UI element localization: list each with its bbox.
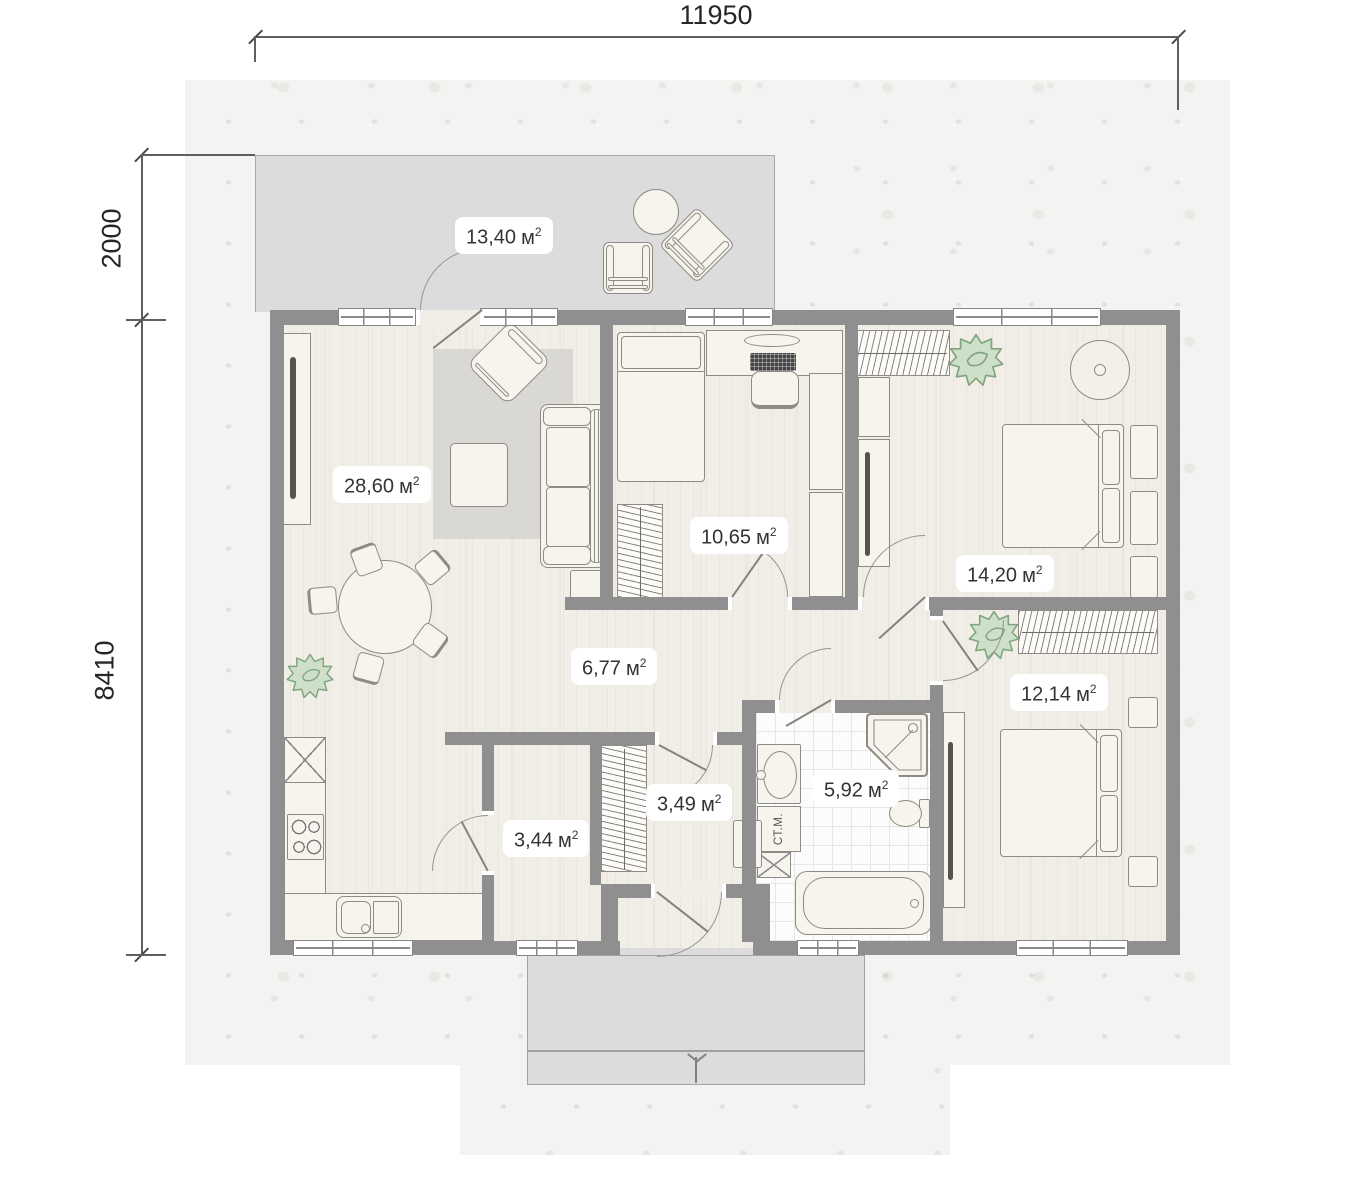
door-jamb <box>713 732 717 745</box>
wall <box>925 597 1167 610</box>
wall <box>831 700 930 713</box>
wall <box>445 732 659 745</box>
bed-pillow <box>1102 430 1120 485</box>
dresser <box>858 377 890 437</box>
door-jamb <box>651 884 655 898</box>
sofa-cushion <box>546 427 590 487</box>
chair-back <box>608 285 648 289</box>
wall <box>930 681 943 942</box>
terrace-armchair <box>603 242 653 294</box>
faucet-icon <box>910 899 919 908</box>
wall <box>601 884 618 955</box>
wardrobe-upper <box>809 373 843 490</box>
room-label-bathroom: 5,92м2 <box>813 770 899 807</box>
wardrobe-lower <box>809 492 843 597</box>
door-jamb <box>416 310 420 325</box>
wall <box>600 325 613 597</box>
dimension-extension <box>254 36 256 62</box>
washing-machine: СТ.М. <box>757 806 801 852</box>
wall <box>845 325 858 597</box>
faucet-icon <box>756 770 766 780</box>
dimension-line-top <box>255 36 1178 38</box>
dining-chair <box>307 586 338 615</box>
bathtub-inner <box>803 877 924 929</box>
window <box>293 940 413 956</box>
wall <box>1166 310 1180 955</box>
plant-icon <box>948 331 1004 389</box>
washing-machine-label: СТ.М. <box>773 813 785 845</box>
room-label-storage: 3,44м2 <box>503 820 589 857</box>
dimension-extension <box>141 154 255 156</box>
door-jamb <box>930 616 943 620</box>
dimension-value-left-upper: 2000 <box>97 179 128 299</box>
chair-back <box>608 277 648 281</box>
door-jamb <box>480 310 484 325</box>
window <box>516 940 578 956</box>
window <box>1016 940 1128 956</box>
nightstand <box>1130 491 1158 545</box>
wall <box>482 745 494 815</box>
room-label-bedroom-1: 14,20м2 <box>956 555 1054 592</box>
drying-rack <box>617 504 663 604</box>
dimension-extension <box>126 319 166 321</box>
bathroom-sink <box>757 744 801 804</box>
bed-blanket-line <box>1096 730 1097 856</box>
bed-pillow <box>1100 735 1118 792</box>
plant-icon <box>286 650 334 702</box>
terrace-table <box>633 189 679 235</box>
wall <box>590 745 601 885</box>
tv-icon <box>948 742 953 880</box>
porch-step-line <box>528 1050 864 1052</box>
desk-chair <box>751 371 799 409</box>
room-label-bedroom-2: 12,14м2 <box>1010 674 1108 711</box>
hanging-chair-center <box>1094 364 1106 376</box>
sink-basin <box>763 751 797 799</box>
sofa-armrest-top <box>543 407 591 426</box>
floor-plan: СТ.М. <box>0 0 1352 1186</box>
wall <box>742 700 756 942</box>
bed-pillow <box>621 336 701 369</box>
kitchen-sink <box>336 896 402 938</box>
double-bed <box>1000 729 1122 857</box>
stove <box>287 814 324 860</box>
dimension-extension <box>1177 36 1179 110</box>
window <box>685 308 773 326</box>
door-jamb <box>831 700 835 713</box>
dimension-extension <box>126 954 166 956</box>
window <box>953 308 1101 326</box>
dimension-value-top: 11950 <box>651 0 781 31</box>
bathtub <box>795 871 932 935</box>
sofa <box>540 404 606 568</box>
door-jamb <box>788 597 792 610</box>
room-label-living-room: 28,60м2 <box>333 466 431 503</box>
room-label-hallway: 6,77м2 <box>571 648 657 685</box>
monitor-icon <box>744 334 800 347</box>
window <box>480 308 558 326</box>
nightstand <box>1128 856 1158 887</box>
wall <box>713 732 744 745</box>
wall <box>270 310 284 955</box>
door-jamb <box>728 597 732 610</box>
door-jamb <box>930 681 943 685</box>
window <box>797 940 859 956</box>
bedroom-cabinet <box>1130 556 1158 598</box>
dimension-line-left <box>141 155 143 955</box>
bed-pillow <box>1102 488 1120 543</box>
door-jamb <box>858 597 862 610</box>
bed-pillow <box>1100 795 1118 852</box>
entry-wardrobe-hangers <box>601 745 647 872</box>
door-jamb <box>775 700 779 713</box>
keyboard-icon <box>750 353 796 371</box>
wardrobe-hangers <box>1018 610 1158 654</box>
wall <box>482 871 494 942</box>
door-jamb <box>722 884 726 898</box>
door-jamb <box>482 871 494 875</box>
sink-drainboard <box>373 901 399 934</box>
sofa-cushion <box>546 487 590 547</box>
window <box>338 308 416 326</box>
sofa-armrest-bottom <box>543 546 591 565</box>
laundry-basket <box>757 852 791 878</box>
tv-cabinet <box>943 712 965 908</box>
dimension-value-left-lower: 8410 <box>90 611 121 731</box>
tv-cabinet <box>283 333 311 525</box>
shower-icon <box>865 712 929 778</box>
room-label-terrace: 13,40м2 <box>455 217 553 254</box>
wall <box>565 597 732 610</box>
bed-blanket-line <box>1098 425 1099 547</box>
coffee-table <box>450 443 508 507</box>
door-jamb <box>925 597 929 610</box>
room-label-entry: 3,49м2 <box>646 784 732 821</box>
refrigerator <box>284 737 326 783</box>
bed-blanket-line <box>618 371 704 372</box>
wall <box>788 597 862 610</box>
room-label-kids-room: 10,65м2 <box>690 517 788 554</box>
door-jamb <box>655 732 659 745</box>
single-bed <box>617 332 705 482</box>
tv-icon <box>290 357 296 499</box>
tv-icon <box>865 452 870 556</box>
nightstand <box>1130 425 1158 479</box>
faucet-icon <box>361 924 370 933</box>
nightstand <box>1128 697 1158 728</box>
wardrobe-hangers <box>856 330 950 376</box>
double-bed <box>1002 424 1124 548</box>
